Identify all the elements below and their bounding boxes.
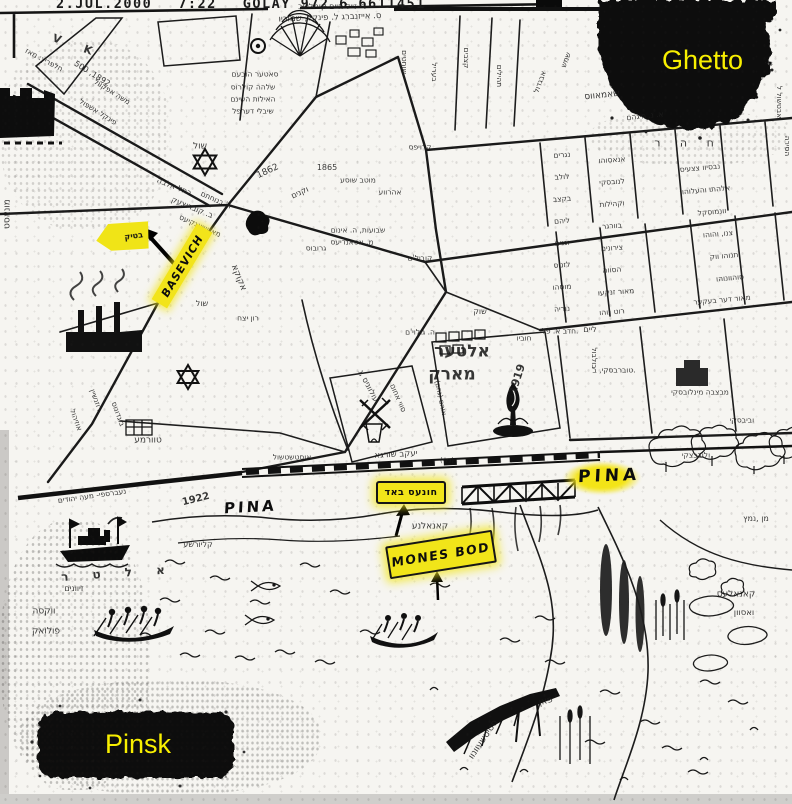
scan-edge-bottom bbox=[0, 794, 792, 804]
market-stalls-icon bbox=[436, 330, 485, 354]
fan-structure-icon bbox=[270, 10, 330, 56]
rowboat-icon bbox=[370, 613, 438, 648]
map-frame bbox=[0, 4, 560, 58]
highlight-arrow-label: בטיק bbox=[124, 230, 144, 241]
fax-date: 2.JUL.2000 bbox=[56, 0, 152, 12]
factory-icon-left-edge bbox=[0, 88, 62, 143]
small-houses-icon bbox=[336, 28, 383, 57]
ink-blot bbox=[246, 211, 270, 236]
reeds-icon bbox=[430, 590, 758, 780]
fax-station: GOLAY 972 6 6611451 bbox=[243, 0, 426, 12]
pina-river-label-left: PINA bbox=[224, 497, 278, 518]
ghetto-area bbox=[536, 0, 781, 140]
fax-header: 2.JUL.20007:22GOLAY 972 6 6611451 bbox=[56, 0, 452, 12]
ghetto-label: Ghetto bbox=[662, 45, 743, 76]
steamboat-icon bbox=[56, 518, 130, 567]
monument-flame-icon bbox=[493, 382, 533, 437]
church-building-icon bbox=[676, 360, 708, 386]
pina-river-label-right: PINA bbox=[577, 465, 640, 487]
map-drawing bbox=[0, 0, 792, 804]
smoke-icon bbox=[70, 269, 123, 300]
rowboat-icon bbox=[94, 606, 174, 642]
fax-time: 7:22 bbox=[178, 0, 217, 12]
hones-bod-hebrew-label: חונעס באד bbox=[385, 487, 438, 498]
mones-bod-label: MONES BOD bbox=[392, 539, 491, 570]
scanned-map-page: 2.JUL.20007:22GOLAY 972 6 6611451 בטיק B… bbox=[0, 0, 792, 804]
scan-edge-left bbox=[0, 430, 9, 804]
pinsk-label: Pinsk bbox=[105, 729, 171, 760]
circled-dot-icon bbox=[251, 39, 265, 53]
punt-boat-icon bbox=[446, 688, 560, 754]
hones-bod-highlight: חונעס באד bbox=[376, 481, 446, 504]
